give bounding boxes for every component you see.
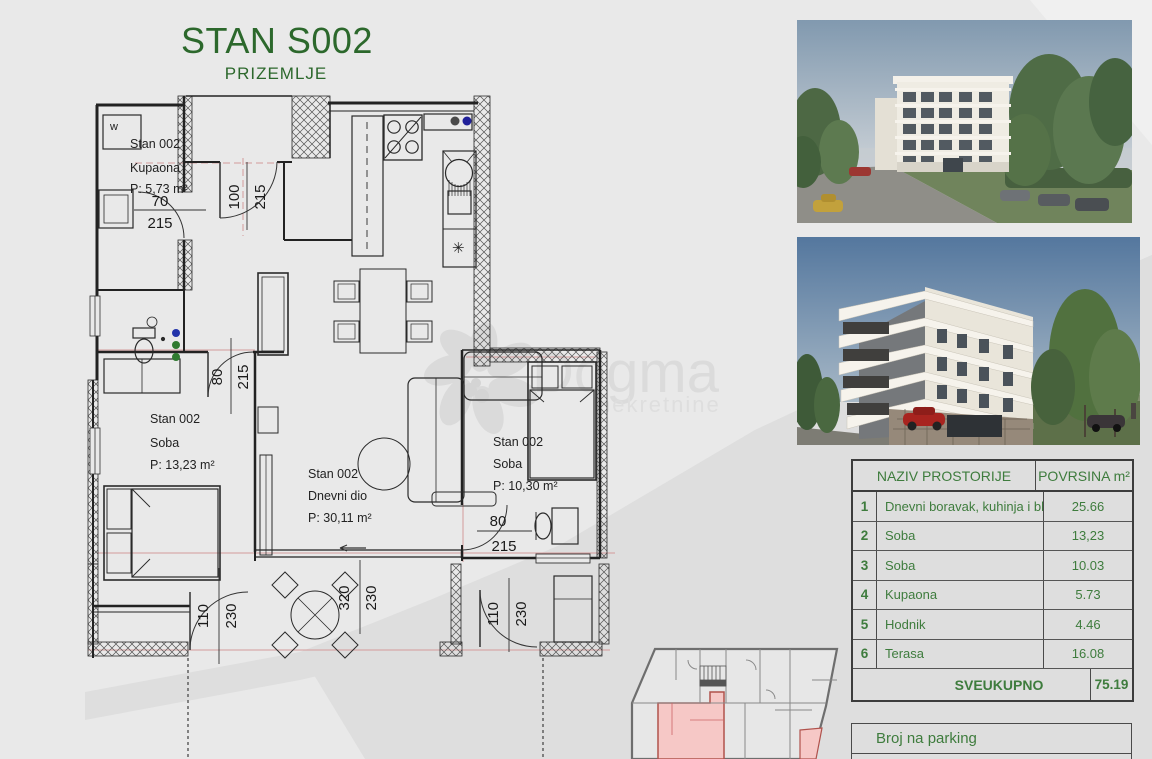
table-row: 3 Soba 10.03 <box>853 551 1132 581</box>
rug-icon <box>358 438 410 490</box>
terrace-bench <box>554 576 592 642</box>
room-label-soba1: Stan 002 <box>150 412 200 426</box>
svg-text:215: 215 <box>491 538 516 555</box>
svg-text:P: 5,73 m²: P: 5,73 m² <box>130 182 188 196</box>
hatched-walls <box>88 96 609 656</box>
svg-text:100: 100 <box>226 184 243 209</box>
svg-text:P: 10,30 m²: P: 10,30 m² <box>493 479 558 493</box>
svg-text:P: 13,23 m²: P: 13,23 m² <box>150 458 215 472</box>
column-header-name: NAZIV PROSTORIJE <box>853 461 1036 490</box>
page-subtitle: PRIZEMLJE <box>181 64 371 84</box>
parking-box: Broj na parking <box>851 723 1132 754</box>
svg-text:230: 230 <box>513 601 530 626</box>
chair-icon <box>535 513 551 539</box>
dimension-labels: 70 215 100 215 80 215 80 215 110 230 320… <box>147 184 530 628</box>
building-render-1 <box>797 20 1132 223</box>
building-render-2 <box>797 237 1140 445</box>
trees-right <box>999 54 1132 186</box>
total-label: SVEUKUPNO <box>853 669 1091 700</box>
room-label-dnevni: Stan 002 <box>308 467 358 481</box>
table-row: 1 Dnevni boravak, kuhinja i blagov. 25.6… <box>853 492 1132 522</box>
table-row: 5 Hodnik 4.46 <box>853 610 1132 640</box>
boiler-symbol: ✳ <box>452 240 465 257</box>
room-label-soba2: Stan 002 <box>493 435 543 449</box>
terrace-boundary <box>188 658 543 759</box>
svg-text:P: 30,11 m²: P: 30,11 m² <box>308 511 372 525</box>
sink-icon <box>446 160 473 187</box>
svg-text:215: 215 <box>147 215 172 232</box>
floorplan-sheet: Dogma nekretnine STAN S002 PRIZEMLJE <box>0 0 1152 759</box>
svg-text:80: 80 <box>209 369 226 386</box>
room-label-kupaona: Stan 002 <box>130 137 180 151</box>
person-figure <box>1131 403 1136 419</box>
svg-text:230: 230 <box>363 585 380 610</box>
desk-icon <box>552 508 578 544</box>
area-table: NAZIV PROSTORIJE POVRSINA m² 1 Dnevni bo… <box>851 459 1134 702</box>
dishwasher-icon <box>448 191 471 214</box>
table-row: 4 Kupaona 5.73 <box>853 581 1132 611</box>
svg-text:110: 110 <box>195 604 212 628</box>
table-row: 2 Soba 13,23 <box>853 522 1132 552</box>
svg-text:80: 80 <box>490 513 507 530</box>
svg-text:320: 320 <box>336 585 353 610</box>
washer-label: w <box>109 121 118 133</box>
dining-table-icon <box>360 269 406 353</box>
tv-cabinet <box>258 273 288 355</box>
total-value: 75.19 <box>1091 669 1132 700</box>
page-title: STAN S002 <box>181 20 371 62</box>
key-plan <box>632 649 837 759</box>
svg-text:Soba: Soba <box>150 436 179 450</box>
svg-text:230: 230 <box>223 603 240 628</box>
title-block: STAN S002 PRIZEMLJE <box>181 20 371 84</box>
svg-text:Kupaona: Kupaona <box>130 161 180 175</box>
svg-text:Dnevni dio: Dnevni dio <box>308 489 367 503</box>
svg-text:215: 215 <box>235 364 252 389</box>
kitchen-counter <box>352 116 383 256</box>
toilet-icon <box>133 328 155 338</box>
area-table-header: NAZIV PROSTORIJE POVRSINA m² <box>853 461 1132 492</box>
table-total-row: SVEUKUPNO 75.19 <box>853 669 1132 700</box>
parking-value-box <box>851 753 1132 759</box>
building-front <box>875 76 1013 172</box>
svg-text:215: 215 <box>252 184 269 209</box>
svg-text:Soba: Soba <box>493 457 522 471</box>
svg-text:110: 110 <box>485 602 502 626</box>
parking-label: Broj na parking <box>876 730 977 747</box>
table-row: 6 Terasa 16.08 <box>853 640 1132 670</box>
column-header-area: POVRSINA m² <box>1036 461 1132 490</box>
